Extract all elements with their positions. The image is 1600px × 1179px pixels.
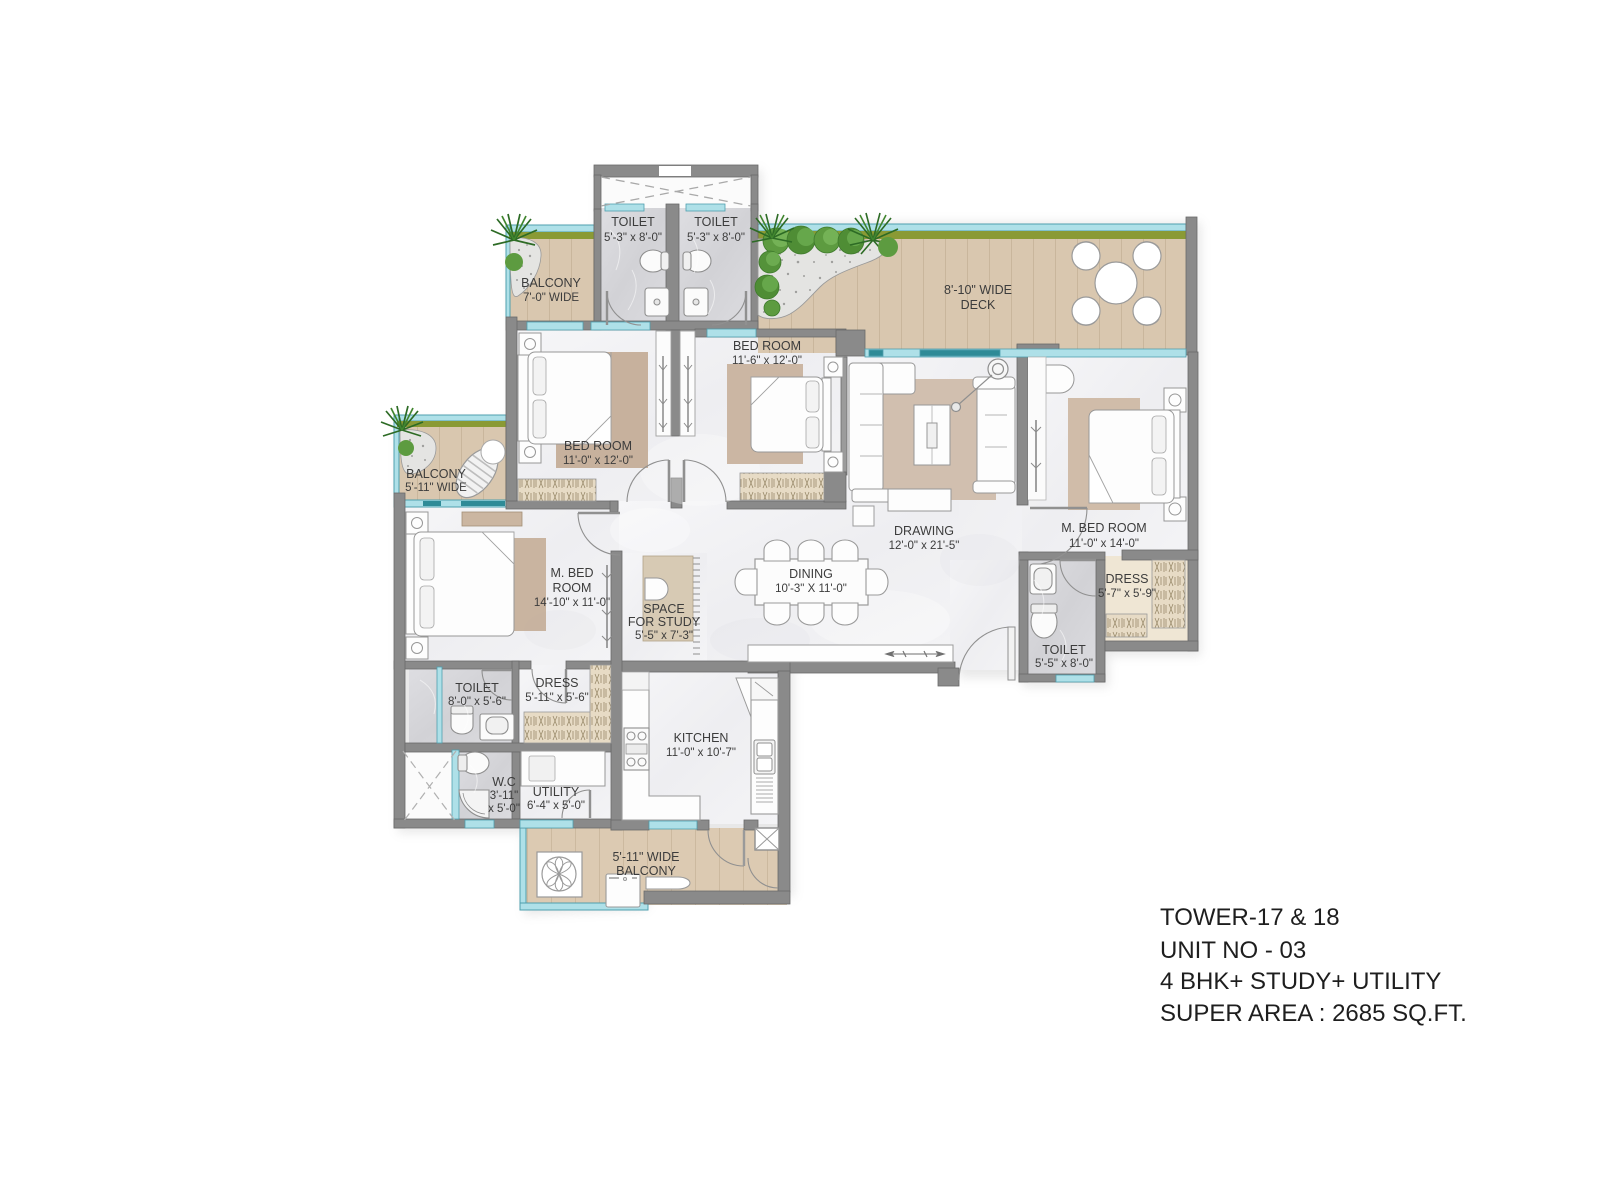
svg-text:KITCHEN: KITCHEN bbox=[674, 731, 729, 745]
svg-text:5'-3" x 8'-0": 5'-3" x 8'-0" bbox=[687, 232, 745, 244]
svg-text:TOWER-17 & 18: TOWER-17 & 18 bbox=[1160, 904, 1340, 931]
svg-text:8'-10" WIDE: 8'-10" WIDE bbox=[944, 283, 1012, 297]
svg-text:x 5'-0": x 5'-0" bbox=[488, 803, 520, 815]
svg-text:ROOM: ROOM bbox=[553, 581, 592, 595]
svg-text:5'-11" WIDE: 5'-11" WIDE bbox=[612, 850, 679, 864]
svg-text:TOILET: TOILET bbox=[611, 215, 655, 229]
svg-text:M. BED ROOM: M. BED ROOM bbox=[1061, 521, 1146, 535]
svg-text:DINING: DINING bbox=[789, 567, 833, 581]
svg-text:UNIT NO - 03: UNIT NO - 03 bbox=[1160, 937, 1306, 964]
svg-text:BALCONY: BALCONY bbox=[616, 864, 676, 878]
svg-text:12'-0" x 21'-5": 12'-0" x 21'-5" bbox=[889, 540, 960, 552]
svg-text:11'-0" x 10'-7": 11'-0" x 10'-7" bbox=[666, 747, 736, 759]
svg-text:4 BHK+ STUDY+ UTILITY: 4 BHK+ STUDY+ UTILITY bbox=[1160, 968, 1441, 995]
svg-text:11'-0" x 12'-0": 11'-0" x 12'-0" bbox=[563, 455, 633, 467]
svg-text:DRESS: DRESS bbox=[535, 676, 578, 690]
svg-text:5'-5" x 8'-0": 5'-5" x 8'-0" bbox=[1035, 658, 1093, 670]
svg-text:DRAWING: DRAWING bbox=[894, 524, 954, 538]
svg-text:6'-4" x 5'-0": 6'-4" x 5'-0" bbox=[527, 800, 585, 812]
svg-text:10'-3" X 11'-0": 10'-3" X 11'-0" bbox=[775, 583, 847, 595]
svg-text:SUPER AREA : 2685 SQ.FT.: SUPER AREA : 2685 SQ.FT. bbox=[1160, 1000, 1467, 1027]
svg-text:BED ROOM: BED ROOM bbox=[564, 439, 632, 453]
svg-text:W.C: W.C bbox=[492, 775, 516, 789]
svg-text:8'-0" x 5'-6": 8'-0" x 5'-6" bbox=[448, 696, 506, 708]
svg-text:14'-10" x 11'-0": 14'-10" x 11'-0" bbox=[534, 597, 610, 609]
svg-text:BED ROOM: BED ROOM bbox=[733, 339, 801, 353]
svg-text:TOILET: TOILET bbox=[694, 215, 738, 229]
svg-text:M. BED: M. BED bbox=[550, 566, 593, 580]
svg-text:5'-11" x 5'-6": 5'-11" x 5'-6" bbox=[525, 692, 588, 704]
svg-text:7'-0" WIDE: 7'-0" WIDE bbox=[523, 292, 579, 304]
svg-text:BALCONY: BALCONY bbox=[521, 276, 581, 290]
svg-text:DECK: DECK bbox=[961, 298, 996, 312]
svg-text:5'-5" x 7'-3": 5'-5" x 7'-3" bbox=[635, 630, 693, 642]
svg-text:BALCONY: BALCONY bbox=[406, 467, 466, 481]
svg-text:11'-0" x 14'-0": 11'-0" x 14'-0" bbox=[1069, 538, 1139, 550]
svg-text:5'-3" x 8'-0": 5'-3" x 8'-0" bbox=[604, 232, 662, 244]
svg-text:TOILET: TOILET bbox=[455, 681, 499, 695]
svg-text:11'-6" x 12'-0": 11'-6" x 12'-0" bbox=[732, 355, 802, 367]
svg-text:TOILET: TOILET bbox=[1042, 643, 1086, 657]
svg-text:5'-7" x 5'-9": 5'-7" x 5'-9" bbox=[1098, 588, 1156, 600]
svg-text:FOR STUDY: FOR STUDY bbox=[628, 615, 701, 629]
svg-text:UTILITY: UTILITY bbox=[533, 785, 580, 799]
svg-text:SPACE: SPACE bbox=[643, 602, 684, 616]
svg-text:3'-11": 3'-11" bbox=[490, 790, 518, 802]
svg-text:5'-11" WIDE: 5'-11" WIDE bbox=[405, 482, 467, 494]
svg-text:DRESS: DRESS bbox=[1105, 572, 1148, 586]
